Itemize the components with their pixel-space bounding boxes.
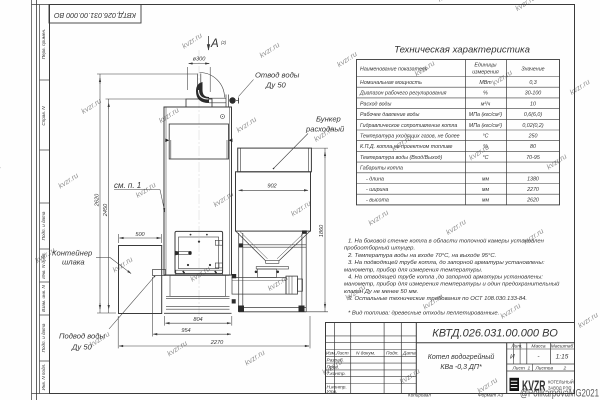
svg-text:Т.контр.: Т.контр. (327, 371, 346, 377)
svg-text:Пров.: Пров. (327, 364, 340, 370)
svg-text:1:15: 1:15 (556, 354, 569, 361)
svg-text:2450: 2450 (103, 203, 109, 217)
svg-text:804: 804 (193, 317, 202, 323)
svg-text:Разраб.: Разраб. (327, 358, 344, 364)
svg-text:954: 954 (181, 328, 190, 334)
svg-text:мм: мм (482, 187, 490, 193)
svg-text:Ду 50: Ду 50 (71, 343, 93, 352)
svg-text:Техническая характеристика: Техническая характеристика (394, 45, 530, 56)
svg-text:шлака: шлака (62, 258, 85, 267)
svg-text:мм: мм (482, 198, 490, 204)
svg-text:%: % (483, 91, 488, 97)
svg-text:3. На подводящей трубе котла,: 3. На подводящей трубе котла, до запорно… (348, 259, 545, 266)
svg-text:4. На отводящей трубе котла ,: 4. На отводящей трубе котла ,до запорной… (348, 274, 543, 281)
svg-text:Инв. N подл.: Инв. N подл. (41, 364, 46, 391)
svg-text:Дата: Дата (402, 351, 416, 357)
svg-text:Лист: Лист (512, 366, 525, 372)
svg-text:1860: 1860 (319, 224, 325, 237)
svg-text:МПа (кгс/см²): МПа (кгс/см²) (469, 112, 503, 118)
svg-text:Лит.: Лит. (510, 343, 522, 349)
svg-text:250: 250 (528, 134, 538, 140)
svg-text:°С: °С (483, 155, 489, 161)
svg-text:Копировал: Копировал (408, 393, 431, 398)
svg-text:- высота: - высота (366, 198, 389, 204)
svg-text:5. Остальные технические треб: 5. Остальные технические требования по О… (348, 296, 527, 302)
svg-text:@PolikarpovaMG2021: @PolikarpovaMG2021 (520, 388, 599, 400)
svg-text:0,6(6,0): 0,6(6,0) (524, 112, 542, 118)
svg-text:Подп. и дата: Подп. и дата (41, 323, 46, 352)
svg-text:Значение: Значение (521, 67, 544, 73)
svg-text:м³/ч: м³/ч (481, 101, 491, 107)
svg-text:Перв. примен.: Перв. примен. (41, 29, 46, 60)
svg-text:2620: 2620 (95, 193, 101, 207)
svg-text:манометр, прибор для измерения: манометр, прибор для измерения температу… (344, 267, 482, 273)
svg-text:Температура воды (Вход/Выход): Температура воды (Вход/Выход) (360, 155, 442, 161)
svg-text:Номинальная мощность: Номинальная мощность (360, 80, 422, 86)
svg-text:Справ. N: Справ. N (41, 106, 46, 126)
svg-text:2. Температура воды на входе: 2. Температура воды на входе 70°С, на вы… (347, 253, 496, 259)
svg-text:- ширина: - ширина (366, 187, 388, 193)
svg-text:Взам. инв. N: Взам. инв. N (41, 284, 46, 311)
svg-text:пробоотборный штуцер.: пробоотборный штуцер. (344, 245, 415, 252)
svg-text:И: И (510, 354, 515, 361)
svg-text:- длина: - длина (366, 176, 384, 182)
svg-text:Подп. и дата: Подп. и дата (41, 211, 46, 240)
svg-text:измерения: измерения (472, 70, 499, 76)
svg-text:МПа (кгс/см²): МПа (кгс/см²) (469, 123, 503, 129)
svg-text:мм: мм (482, 176, 490, 182)
svg-text:Инв. N дубл.: Инв. N дубл. (41, 252, 46, 279)
svg-text:70-95: 70-95 (526, 155, 540, 161)
svg-text:Расход воды: Расход воды (360, 101, 391, 107)
svg-text:A: A (210, 38, 219, 50)
svg-text:Отвод воды: Отвод воды (255, 71, 300, 80)
svg-text:см. п. 1: см. п. 1 (114, 181, 141, 190)
svg-text:2270: 2270 (210, 340, 224, 346)
svg-text:манометр, прибор для измерения: манометр, прибор для измерения температу… (344, 281, 560, 288)
svg-text:Гидравлическое сопротивление к: Гидравлическое сопротивление котла (360, 123, 457, 129)
svg-text:МВт: МВт (479, 80, 492, 86)
svg-text:клапан Ду не менее 50 мм.: клапан Ду не менее 50 мм. (344, 289, 418, 295)
svg-text:Масштаб: Масштаб (551, 343, 574, 349)
svg-text:°С: °С (483, 134, 489, 140)
svg-text:Подвод воды: Подвод воды (59, 332, 105, 341)
svg-text:Ду 50: Ду 50 (265, 81, 287, 90)
svg-text:902: 902 (267, 184, 277, 190)
svg-text:Единицы: Единицы (474, 63, 496, 69)
svg-text:Наименование показателя: Наименование показателя (360, 67, 428, 73)
svg-text:Габариты котла: Габариты котла (360, 166, 403, 172)
svg-text:N докум.: N докум. (356, 351, 375, 357)
svg-text:К.П.Д. котла на проектном топл: К.П.Д. котла на проектном топливе (360, 144, 453, 150)
svg-text:1. На боковой стенке котла в: 1. На боковой стенке котла в области топ… (348, 238, 545, 245)
svg-text:1380: 1380 (527, 176, 539, 182)
svg-text:* Вид топлива: древесные отхо: * Вид топлива: древесные отходы пеллетир… (348, 311, 499, 317)
svg-text:10: 10 (530, 101, 536, 107)
svg-text:80: 80 (530, 144, 536, 150)
svg-text:2620: 2620 (526, 198, 539, 204)
svg-text:500: 500 (135, 232, 145, 238)
svg-text:Утв.: Утв. (327, 389, 338, 395)
svg-text:2270: 2270 (526, 187, 539, 193)
svg-text:0,02(0,2): 0,02(0,2) (522, 123, 543, 129)
svg-text:Котел водогрейный: Котел водогрейный (428, 353, 495, 361)
svg-text:КОТЕЛЬНЫЙ: КОТЕЛЬНЫЙ (548, 380, 574, 385)
svg-text:КВа -0,3 ДП*: КВа -0,3 ДП* (440, 364, 482, 371)
svg-text:ø300: ø300 (193, 57, 207, 63)
svg-text:Масса: Масса (531, 343, 546, 349)
svg-text:(2): (2) (221, 40, 227, 45)
svg-text:1: 1 (528, 366, 531, 372)
svg-text:КВТД.026.031.00.000 ВО: КВТД.026.031.00.000 ВО (432, 328, 558, 340)
svg-text:КВТД.026.031.00.000 ВО: КВТД.026.031.00.000 ВО (54, 11, 136, 20)
svg-text:Изм.Лист: Изм.Лист (326, 351, 349, 357)
svg-text:Подп.: Подп. (386, 351, 399, 357)
svg-text:30-100: 30-100 (525, 91, 542, 97)
svg-text:%: % (483, 144, 488, 150)
svg-text:Диапазон рабочего регулировани: Диапазон рабочего регулирования (359, 91, 447, 97)
svg-text:Формат А3: Формат А3 (478, 393, 504, 398)
svg-text:Температура уходящих газов, не: Температура уходящих газов, не более (360, 134, 460, 140)
svg-text:Листов: Листов (535, 366, 554, 372)
svg-text:расходный: расходный (305, 125, 345, 134)
svg-text:2: 2 (563, 366, 567, 372)
svg-text:Бункер: Бункер (316, 115, 341, 124)
svg-text:0,3: 0,3 (529, 80, 536, 86)
svg-text:Рабочее давление воды: Рабочее давление воды (360, 112, 419, 118)
svg-text:Контейнер: Контейнер (52, 249, 92, 258)
